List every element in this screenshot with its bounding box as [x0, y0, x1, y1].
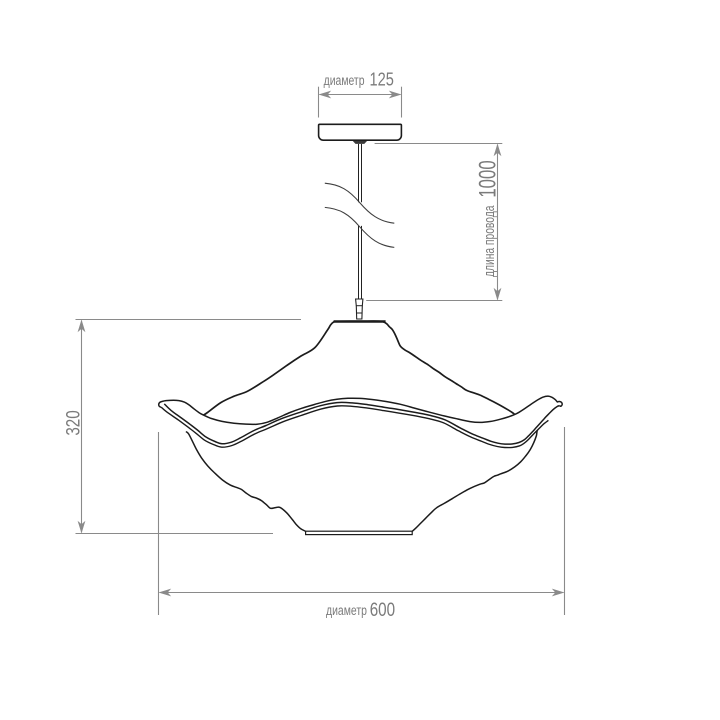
- svg-text:320: 320: [62, 410, 84, 436]
- svg-text:125: 125: [370, 69, 394, 90]
- svg-text:диаметр: диаметр: [324, 73, 365, 89]
- svg-text:диаметр: диаметр: [326, 603, 367, 619]
- svg-text:600: 600: [370, 598, 395, 620]
- svg-text:длина провода: длина провода: [480, 205, 498, 277]
